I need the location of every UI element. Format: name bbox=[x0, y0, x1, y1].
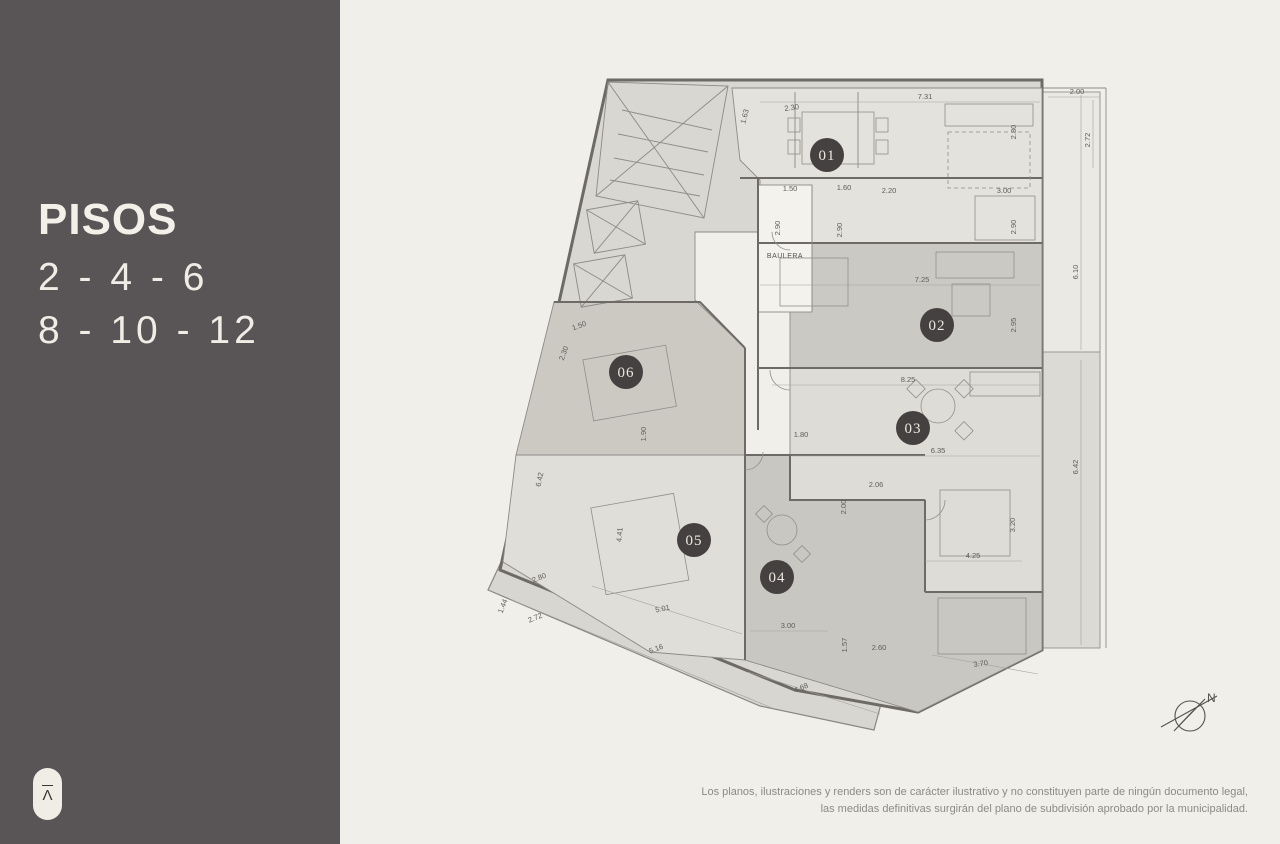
sidebar: PISOS 2 - 4 - 6 8 - 10 - 12 Λ bbox=[0, 0, 340, 844]
dim-label: 6.10 bbox=[1071, 265, 1080, 280]
dim-label: 1.90 bbox=[639, 427, 648, 442]
dim-label: 2.72 bbox=[527, 611, 544, 625]
dim-label: 6.35 bbox=[931, 446, 946, 455]
dim-label: 1.57 bbox=[840, 638, 849, 653]
logo-lambda-glyph: Λ bbox=[42, 788, 52, 803]
dim-label: 2.60 bbox=[872, 643, 887, 652]
dim-label: 2.00 bbox=[1070, 87, 1085, 96]
dim-label: 2.90 bbox=[773, 221, 782, 236]
disclaimer-line-2: las medidas definitivas surgirán del pla… bbox=[701, 801, 1248, 818]
dim-label: 2.20 bbox=[882, 186, 897, 195]
dim-label: 2.06 bbox=[869, 480, 884, 489]
dim-label: 2.80 bbox=[1009, 125, 1018, 140]
dim-label: 1.80 bbox=[794, 430, 809, 439]
unit-badge-label: 01 bbox=[819, 148, 836, 164]
dim-label: 2.90 bbox=[835, 223, 844, 238]
baulera-room bbox=[758, 185, 812, 312]
floor-plan-drawing: 1.63 2.30 7.31 2.80 2.00 2.72 1.50 1.60 … bbox=[340, 0, 1280, 844]
dim-label: 2.90 bbox=[1009, 220, 1018, 235]
dim-label: 1.44 bbox=[496, 598, 510, 615]
unit-badge-label: 04 bbox=[769, 570, 786, 586]
dim-label: 4.25 bbox=[966, 551, 981, 560]
dim-label: 7.31 bbox=[918, 92, 933, 101]
compass-north-label: N bbox=[1207, 691, 1216, 705]
dim-label: 4.41 bbox=[614, 527, 624, 542]
balcony-top-right bbox=[1042, 92, 1100, 352]
dim-label: 8.25 bbox=[901, 375, 916, 384]
unit-badge-02[interactable]: 02 bbox=[920, 308, 954, 342]
sidebar-heading: PISOS 2 - 4 - 6 8 - 10 - 12 bbox=[38, 196, 260, 357]
unit-badge-label: 02 bbox=[929, 318, 946, 334]
floors-line-2: 8 - 10 - 12 bbox=[38, 305, 260, 357]
floors-line-1: 2 - 4 - 6 bbox=[38, 252, 260, 304]
unit-badge-01[interactable]: 01 bbox=[810, 138, 844, 172]
balcony-bottom-right bbox=[1042, 352, 1100, 648]
dim-label: 1.60 bbox=[837, 183, 852, 192]
disclaimer-line-1: Los planos, ilustraciones y renders son … bbox=[701, 784, 1248, 801]
unit-badge-05[interactable]: 05 bbox=[677, 523, 711, 557]
unit-badge-04[interactable]: 04 bbox=[760, 560, 794, 594]
north-compass-icon: N bbox=[1161, 691, 1217, 731]
unit-badge-label: 05 bbox=[686, 533, 703, 549]
page-title: PISOS bbox=[38, 196, 260, 244]
unit-badge-03[interactable]: 03 bbox=[896, 411, 930, 445]
unit-badge-06[interactable]: 06 bbox=[609, 355, 643, 389]
dim-label: 6.42 bbox=[1071, 460, 1080, 475]
dim-label: 3.00 bbox=[997, 186, 1012, 195]
dim-label: 3.20 bbox=[1008, 518, 1017, 533]
legal-disclaimer: Los planos, ilustraciones y renders son … bbox=[701, 784, 1248, 818]
brand-logo: Λ bbox=[33, 768, 62, 820]
dim-label: 2.72 bbox=[1083, 133, 1092, 148]
dim-label: 2.95 bbox=[1009, 318, 1018, 333]
unit-badge-label: 03 bbox=[905, 421, 922, 437]
dim-label: 7.25 bbox=[915, 275, 930, 284]
dim-label: 1.50 bbox=[783, 184, 798, 193]
floor-plan-page: PISOS 2 - 4 - 6 8 - 10 - 12 Λ bbox=[0, 0, 1280, 844]
dim-label: 2.00 bbox=[839, 500, 848, 515]
unit-badge-label: 06 bbox=[618, 365, 635, 381]
logo-macron-bar bbox=[42, 785, 53, 786]
baulera-label: BAULERA bbox=[767, 253, 803, 260]
dim-label: 3.00 bbox=[781, 621, 796, 630]
